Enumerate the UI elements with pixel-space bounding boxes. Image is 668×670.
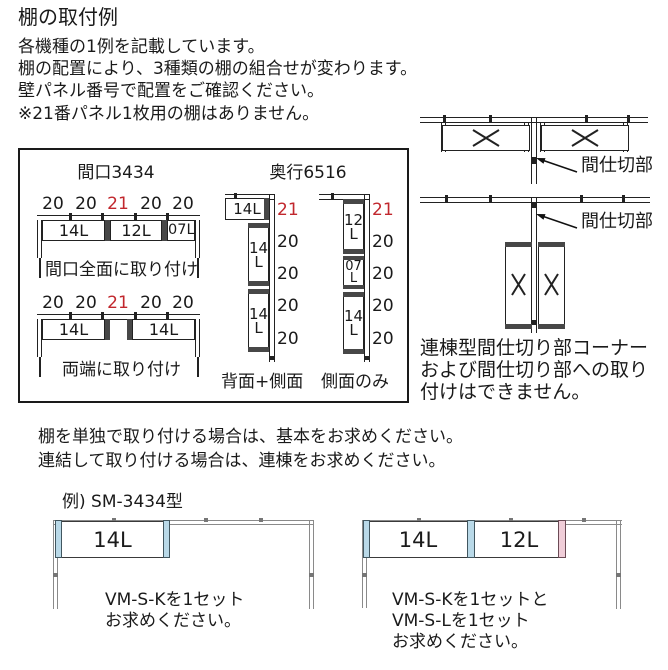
partition-note-line-2: および間仕切り部への取り [420,359,648,381]
end-post-line [197,357,199,377]
panel-number: 20 [277,296,299,316]
shelf-cap [538,324,565,329]
example-shelf: 14L [55,521,170,558]
arrow-icon [533,154,579,174]
panel-number-red: 21 [106,194,130,214]
example-note-line-2: お求めください。 [105,611,241,631]
room-tick [259,518,263,522]
shelf-cap [248,281,269,286]
page-title: 棚の取付例 [18,5,118,29]
room-tick [204,518,208,522]
end-post [195,220,200,258]
panel-tick [443,115,446,122]
partition-note-line-1: 連棟型間仕切り部コーナー [420,337,648,359]
cross-mark-icon [510,271,527,298]
bracket-basic [363,520,370,558]
diagram-caption: 側面のみ [321,372,389,392]
shelf-box: 14L [225,198,269,220]
shelf-cap [343,199,364,204]
panel-tick [166,312,169,319]
panel-number: 20 [372,329,394,349]
room-tick [53,573,58,577]
panel-number-red: 21 [372,200,394,220]
shelf-box-vertical: 14L [248,289,269,352]
arrow-icon [533,210,579,230]
partition-label: 間仕切部 [581,212,653,232]
panel-number: 20 [139,194,163,214]
shelf-box-vertical: 14L [248,223,269,286]
catalog-page: 棚の取付例 各機種の1例を記載しています。 棚の配置により、3種類の棚の組合せが… [0,0,668,670]
section-header-depth: 奥行6516 [248,163,368,183]
panel-tick [134,312,137,319]
shelf-cap [505,324,532,329]
intro-line-1: 各機種の1例を記載しています。 [18,37,265,57]
intro-line-2: 棚の配置により、3種類の棚の組合せが変わります。 [18,59,417,79]
panel-number: 20 [139,293,163,313]
shelf-cap [538,242,565,247]
purchase-note-line-1: 棚を単独で取り付ける場合は、基本をお求めください。 [38,427,463,447]
shelf-cap [264,198,269,220]
overview-box: 間口3434 奥行6516 20 20 21 20 20 14L 12L 07L… [18,148,409,403]
room-tick [582,518,586,522]
shelf-label-suffix: L [349,225,357,243]
diagram-caption: 背面+側面 [221,372,303,392]
panel-tick [166,213,169,220]
wall-foot [364,356,370,360]
example-note-line-1: VM-S-Kを1セット [105,590,244,610]
intro-line-3: 壁パネル番号で配置をご確認ください。 [18,81,324,101]
cross-mark-icon [570,128,600,148]
shelf-cap [248,223,269,228]
panel-tick [622,195,625,202]
partition-note-line-3: 付けはできません。 [420,381,590,403]
panel-number: 20 [372,264,394,284]
panel-number-red: 21 [277,200,299,220]
example-heading: 例) SM-3434型 [62,492,183,512]
panel-tick [134,213,137,220]
shelf-box: 14L [42,319,105,340]
panel-number: 20 [74,293,98,313]
panel-number: 20 [372,296,394,316]
bracket-basic [55,520,62,558]
example-note-line-2: VM-S-Lを1セット [392,611,530,631]
shelf-label: 12L [344,213,363,241]
shelf-label-suffix: L [349,321,357,339]
end-post-line [39,258,41,278]
shelf-cap [343,249,364,254]
shelf-cap [505,242,532,247]
panel-tick [489,115,492,122]
shelf-box: 14L [132,319,195,340]
shelf-cap [343,292,364,297]
panel-number: 20 [372,232,394,252]
cross-mark-icon [471,128,501,148]
bracket-basic [467,520,475,558]
shelf-box: 12L [110,220,162,241]
diagram-caption: 両端に取り付け [62,360,181,380]
panel-tick [585,115,588,122]
side-wall [364,194,370,362]
shelf-box: 14L [42,220,105,241]
room-wall [616,520,621,609]
room-tick [616,573,621,577]
room-tick [362,573,367,577]
shelf-label: 14L [344,309,363,337]
panel-tick [445,195,448,202]
shelf-label-suffix: L [254,253,262,271]
shelf-box: 07L [167,220,195,241]
panel-number: 20 [171,293,195,313]
partition-tick [531,203,537,208]
shelf-label-suffix: L [350,271,357,286]
example-note-line-3: お求めください。 [392,632,528,652]
bracket-extension [558,520,566,558]
shelf-cap [343,349,364,354]
panel-tick [331,193,334,200]
partition-label: 間仕切部 [581,156,653,176]
panel-number: 20 [171,194,195,214]
end-post [195,319,200,357]
cross-mark-icon [543,271,560,298]
panel-tick [627,115,630,122]
section-header-width: 間口3434 [56,163,176,183]
example-note-line-1: VM-S-Kを1セットと [392,590,548,610]
panel-tick [101,213,104,220]
panel-number: 20 [277,329,299,349]
panel-tick [580,195,583,202]
panel-tick [489,195,492,202]
bracket-basic [163,520,170,558]
panel-number: 20 [277,232,299,252]
panel-tick [69,213,72,220]
room-tick [309,573,314,577]
panel-number: 20 [41,293,65,313]
end-post-line [39,357,41,377]
diagram-caption: 間口全面に取り付け [45,260,198,280]
shelf-cap [343,285,364,289]
shelf-box-vertical: 14L [343,292,364,354]
shelf-box-vertical: 12L [343,199,364,254]
side-wall [269,194,275,362]
shelf-cap [248,289,269,294]
shelf-label: 14L [249,241,268,269]
panel-tick [101,312,104,319]
panel-number: 20 [41,194,65,214]
shelf-label-suffix: L [254,319,262,337]
shelf-box-vertical: 07L [343,256,364,289]
example-shelf: 14L [363,521,473,558]
room-wall [309,520,314,609]
shelf-cap [105,319,110,340]
shelf-label: 14L [249,307,268,335]
shelf-cap [248,347,269,352]
panel-number: 20 [74,194,98,214]
panel-number-red: 21 [106,293,130,313]
intro-line-4: ※21番パネル1枚用の棚はありません。 [18,104,319,124]
panel-tick [69,312,72,319]
panel-number: 20 [277,264,299,284]
wall-foot [269,356,275,360]
purchase-note-line-2: 連結して取り付ける場合は、連棟をお求めください。 [38,451,446,471]
example-shelf: 12L [472,521,566,558]
shelf-label: 07L [344,261,363,285]
